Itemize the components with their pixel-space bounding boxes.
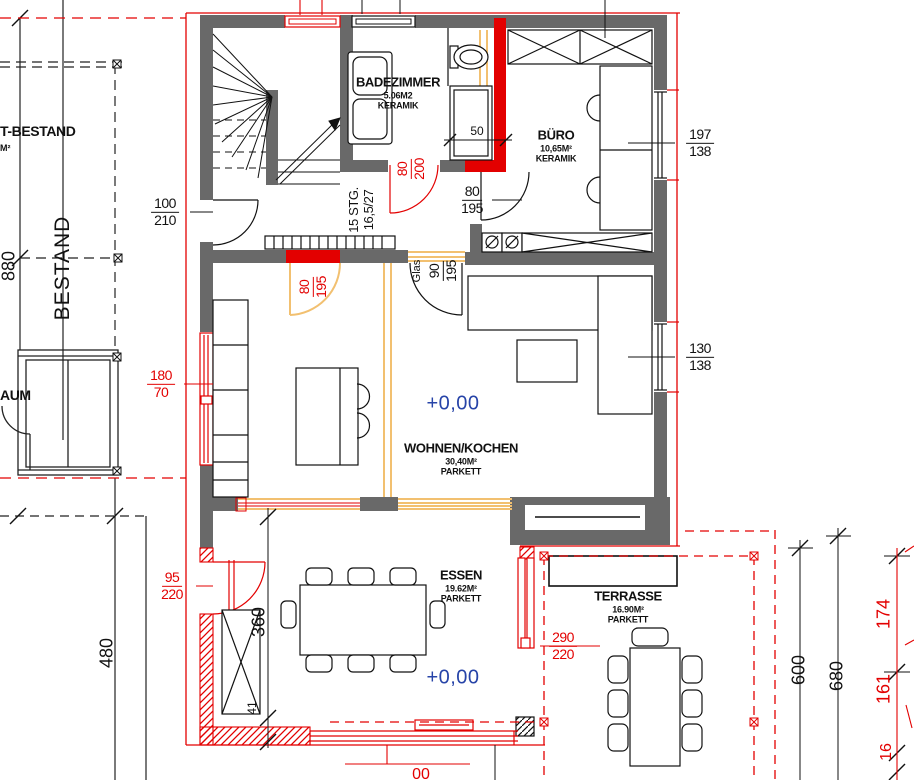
room-label-wohnen-kochen: WOHNEN/KOCHEN 30,40M² PARKETT <box>404 442 518 477</box>
dim-16: 16 <box>878 743 896 761</box>
stair-label: 15 STG. 16,5/27 <box>347 187 377 233</box>
dim-door-essen: 95 220 <box>158 570 186 602</box>
label-glas: Glas <box>411 260 423 283</box>
dim-680: 680 <box>827 661 848 691</box>
dim-partial-bottom: 00 <box>412 766 430 780</box>
dim-door-kueche: 80 195 <box>297 273 329 301</box>
column-hatched <box>516 717 534 736</box>
dim-window-links: 180 70 <box>147 368 175 400</box>
annex-room <box>2 350 118 475</box>
dim-window-buero: 197 138 <box>686 127 714 159</box>
dim-door-bad: 80 200 <box>395 155 427 183</box>
dim-door-entry: 100 210 <box>151 196 179 228</box>
floor-plan: BADEZIMMER 5.06M2 KERAMIK BÜRO 10,65M² K… <box>0 0 914 780</box>
level-label-wohnen: +0,00 <box>426 393 479 416</box>
label-bestand-partial: T-BESTAND <box>0 123 75 139</box>
room-label-badezimmer: BADEZIMMER 5.06M2 KERAMIK <box>356 76 440 111</box>
dim-600: 600 <box>789 655 810 685</box>
dim-door-glas: 90 195 <box>427 257 459 285</box>
room-label-essen: ESSEN 19.62M² PARKETT <box>440 569 482 604</box>
dim-door-terrasse: 290 220 <box>549 630 577 662</box>
axis-label-bestand: BESTAND <box>51 216 75 321</box>
dim-161: 161 <box>874 674 895 704</box>
label-bestand-area-partial: M² <box>0 143 11 153</box>
dim-door-buero: 80 195 <box>458 184 486 216</box>
label-raum-partial: AUM <box>0 387 31 403</box>
room-label-terrasse: TERRASSE 16.90M² PARKETT <box>594 590 662 625</box>
plan-linework <box>0 0 914 780</box>
dim-niche-50: 50 <box>470 124 483 138</box>
level-label-essen: +0,00 <box>426 667 479 690</box>
dim-880: 880 <box>0 251 20 281</box>
dim-480: 480 <box>97 638 118 668</box>
room-label-buero: BÜRO 10,65M² KERAMIK <box>536 129 577 164</box>
dim-174: 174 <box>874 599 895 629</box>
dim-41: 41 <box>245 701 259 714</box>
dim-360: 360 <box>249 607 270 637</box>
dim-window-wohnen: 130 138 <box>686 341 714 373</box>
